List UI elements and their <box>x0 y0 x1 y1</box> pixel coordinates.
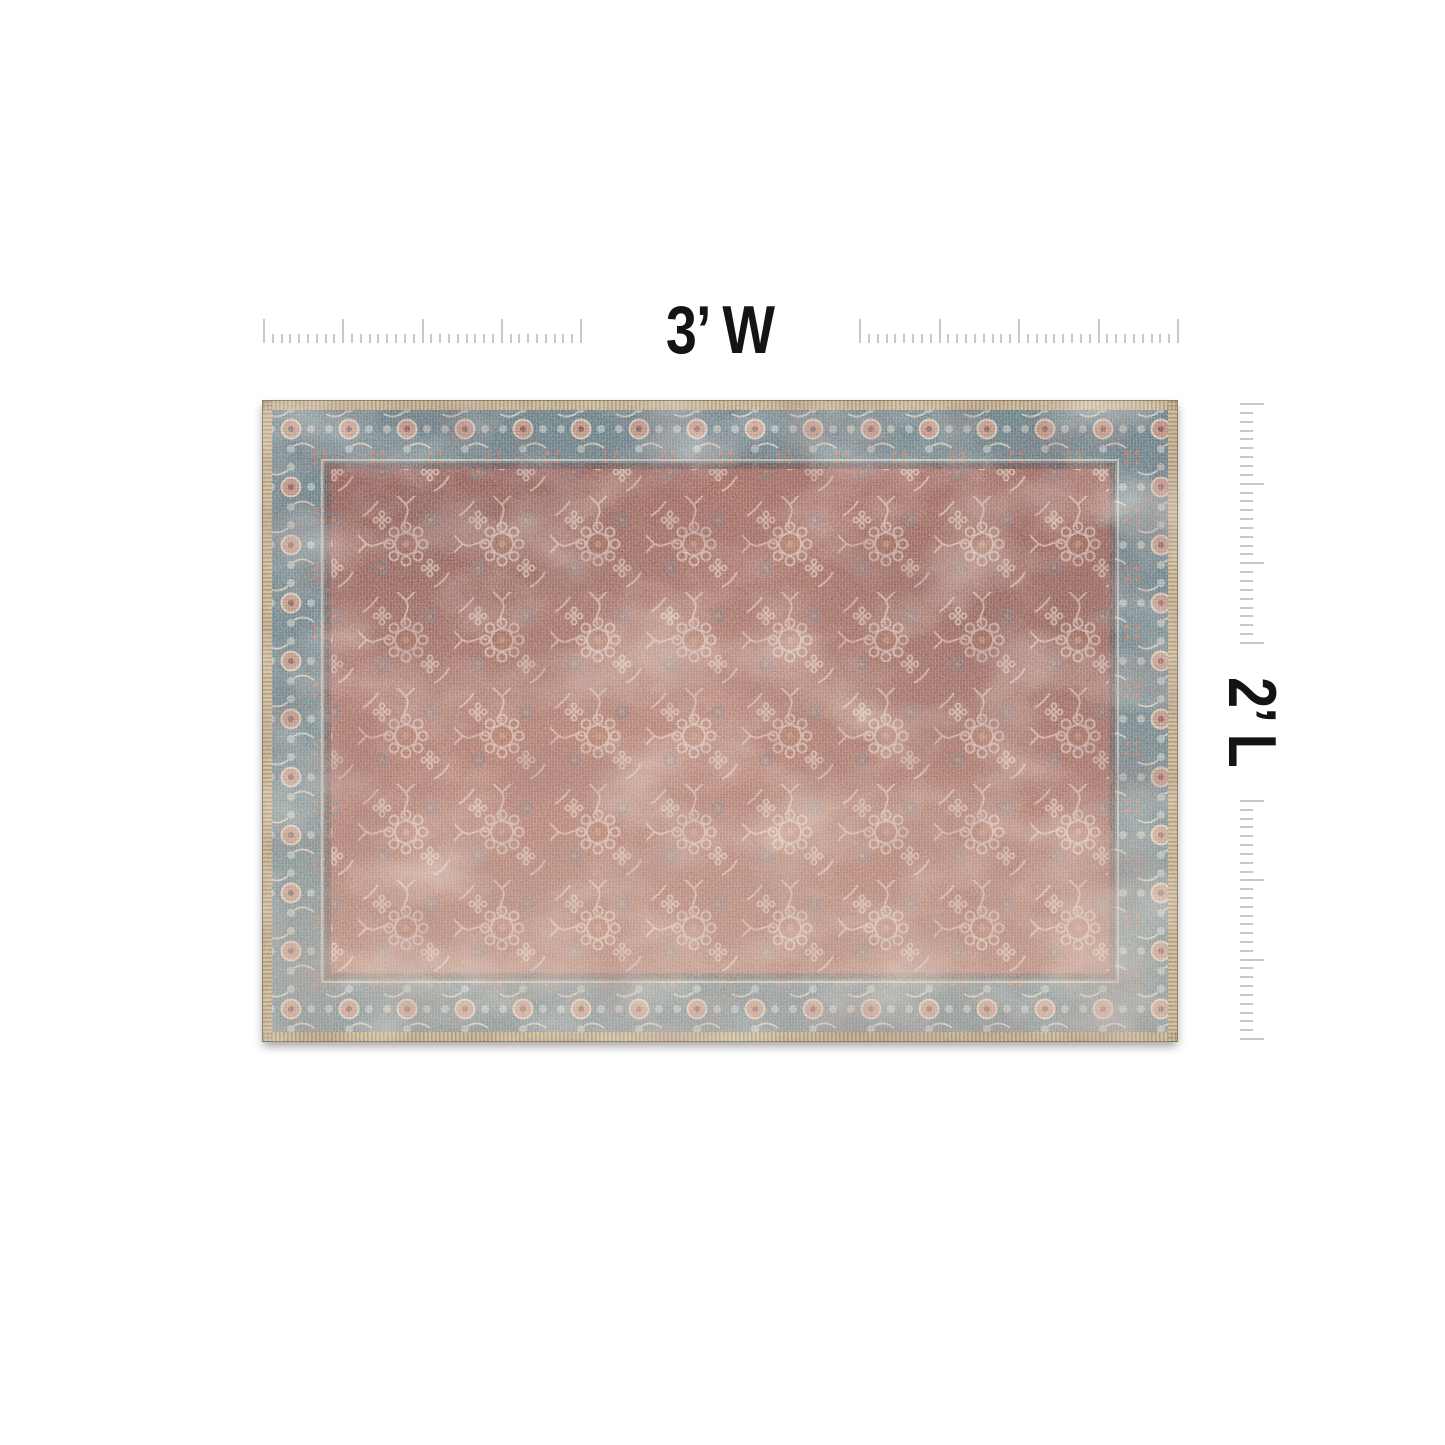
ruler-tick <box>483 334 485 343</box>
length-ruler-top-segment <box>1240 404 1264 643</box>
ruler-tick <box>1240 430 1253 432</box>
ruler-tick <box>1062 334 1064 343</box>
ruler-tick <box>1240 421 1253 423</box>
ruler-tick <box>333 334 335 343</box>
ruler-tick <box>510 334 512 343</box>
ruler-tick <box>1053 334 1055 343</box>
ruler-tick <box>1115 334 1117 343</box>
ruler-tick <box>527 334 529 343</box>
ruler-tick <box>1000 334 1002 343</box>
ruler-tick <box>501 319 503 343</box>
ruler-tick <box>1098 319 1100 343</box>
ruler-tick <box>518 334 520 343</box>
ruler-tick <box>877 334 879 343</box>
ruler-tick <box>1240 536 1253 538</box>
ruler-tick <box>1240 518 1253 520</box>
ruler-tick <box>571 334 573 343</box>
ruler-tick <box>912 334 914 343</box>
ruler-tick <box>1240 800 1264 802</box>
ruler-tick <box>474 334 476 343</box>
ruler-tick <box>983 334 985 343</box>
ruler-tick <box>1159 334 1161 343</box>
ruler-tick <box>536 334 538 343</box>
ruler-tick <box>492 334 494 343</box>
ruler-tick <box>1071 334 1073 343</box>
ruler-tick <box>1240 509 1253 511</box>
ruler-tick <box>1240 1029 1253 1031</box>
ruler-tick <box>1240 967 1253 969</box>
ruler-tick <box>457 334 459 343</box>
ruler-tick <box>1240 474 1253 476</box>
ruler-tick <box>939 319 941 343</box>
ruler-tick <box>351 334 353 343</box>
ruler-tick <box>1240 580 1253 582</box>
ruler-tick <box>1240 589 1253 591</box>
ruler-tick <box>580 319 582 343</box>
ruler-tick <box>1240 527 1253 529</box>
length-ruler-bottom-segment <box>1240 801 1264 1039</box>
ruler-tick <box>1240 571 1253 573</box>
ruler-tick <box>1240 826 1253 828</box>
ruler-tick <box>1151 334 1153 343</box>
ruler-tick <box>1240 994 1253 996</box>
ruler-tick <box>1036 334 1038 343</box>
ruler-tick <box>1240 897 1253 899</box>
ruler-tick <box>554 334 556 343</box>
ruler-tick <box>1240 906 1253 908</box>
ruler-tick <box>1240 492 1253 494</box>
ruler-tick <box>377 334 379 343</box>
ruler-tick <box>1240 809 1253 811</box>
ruler-tick <box>289 334 291 343</box>
ruler-tick <box>1240 1038 1264 1040</box>
ruler-tick <box>903 334 905 343</box>
ruler-tick <box>1106 334 1108 343</box>
ruler-tick <box>1240 923 1253 925</box>
product-image-canvas: 3’ W 2’ L <box>0 0 1445 1445</box>
ruler-tick <box>1240 853 1253 855</box>
ruler-tick <box>1240 545 1253 547</box>
ruler-tick <box>868 334 870 343</box>
ruler-tick <box>921 334 923 343</box>
ruler-tick <box>1240 862 1253 864</box>
width-ruler-left-segment <box>264 319 581 343</box>
ruler-tick <box>1009 334 1011 343</box>
ruler-tick <box>965 334 967 343</box>
ruler-tick <box>992 334 994 343</box>
ruler-tick <box>281 334 283 343</box>
ruler-tick <box>930 334 932 343</box>
ruler-tick <box>1240 465 1253 467</box>
ruler-tick <box>1240 412 1253 414</box>
ruler-tick <box>1240 985 1253 987</box>
ruler-tick <box>360 334 362 343</box>
ruler-tick <box>886 334 888 343</box>
ruler-tick <box>545 334 547 343</box>
ruler-tick <box>263 319 265 343</box>
ruler-tick <box>1240 562 1264 564</box>
ruler-tick <box>1045 334 1047 343</box>
ruler-tick <box>1089 334 1091 343</box>
ruler-tick <box>859 319 861 343</box>
ruler-tick <box>1240 607 1253 609</box>
ruler-tick <box>1240 915 1253 917</box>
ruler-tick <box>439 334 441 343</box>
ruler-tick <box>1018 319 1020 343</box>
ruler-tick <box>1133 334 1135 343</box>
ruler-tick <box>386 334 388 343</box>
ruler-tick <box>947 334 949 343</box>
ruler-tick <box>1240 447 1253 449</box>
ruler-tick <box>1240 1012 1253 1014</box>
ruler-tick <box>1240 959 1264 961</box>
ruler-tick <box>395 334 397 343</box>
ruler-tick <box>1027 334 1029 343</box>
ruler-tick <box>974 334 976 343</box>
ruler-tick <box>1240 941 1253 943</box>
ruler-tick <box>1240 1003 1253 1005</box>
ruler-tick <box>1240 844 1253 846</box>
ruler-tick <box>1240 950 1253 952</box>
ruler-tick <box>1240 598 1253 600</box>
ruler-tick <box>562 334 564 343</box>
ruler-tick <box>430 334 432 343</box>
ruler-tick <box>1240 483 1264 485</box>
ruler-tick <box>1168 334 1170 343</box>
ruler-tick <box>422 319 424 343</box>
width-ruler-right-segment <box>860 319 1178 343</box>
ruler-tick <box>1240 976 1253 978</box>
ruler-tick <box>1240 932 1253 934</box>
width-dimension-label: 3’ W <box>609 295 830 365</box>
ruler-tick <box>1240 818 1253 820</box>
ruler-tick <box>1240 553 1253 555</box>
ruler-tick <box>316 334 318 343</box>
ruler-tick <box>1240 456 1253 458</box>
ruler-tick <box>1240 871 1253 873</box>
ruler-tick <box>1124 334 1126 343</box>
rug-product-photo <box>262 400 1178 1042</box>
ruler-tick <box>272 334 274 343</box>
ruler-tick <box>1240 1020 1253 1022</box>
ruler-tick <box>1240 500 1253 502</box>
ruler-tick <box>1177 319 1179 343</box>
ruler-tick <box>1240 438 1253 440</box>
ruler-tick <box>342 319 344 343</box>
ruler-tick <box>413 334 415 343</box>
ruler-tick <box>1240 835 1253 837</box>
ruler-tick <box>1240 888 1253 890</box>
ruler-tick <box>466 334 468 343</box>
ruler-tick <box>1080 334 1082 343</box>
ruler-tick <box>448 334 450 343</box>
ruler-tick <box>307 334 309 343</box>
ruler-tick <box>1240 879 1264 881</box>
ruler-tick <box>1240 403 1264 405</box>
ruler-tick <box>369 334 371 343</box>
ruler-tick <box>1142 334 1144 343</box>
ruler-tick <box>298 334 300 343</box>
rug-image <box>262 400 1178 1042</box>
ruler-tick <box>894 334 896 343</box>
ruler-tick <box>325 334 327 343</box>
ruler-tick <box>404 334 406 343</box>
ruler-tick <box>956 334 958 343</box>
